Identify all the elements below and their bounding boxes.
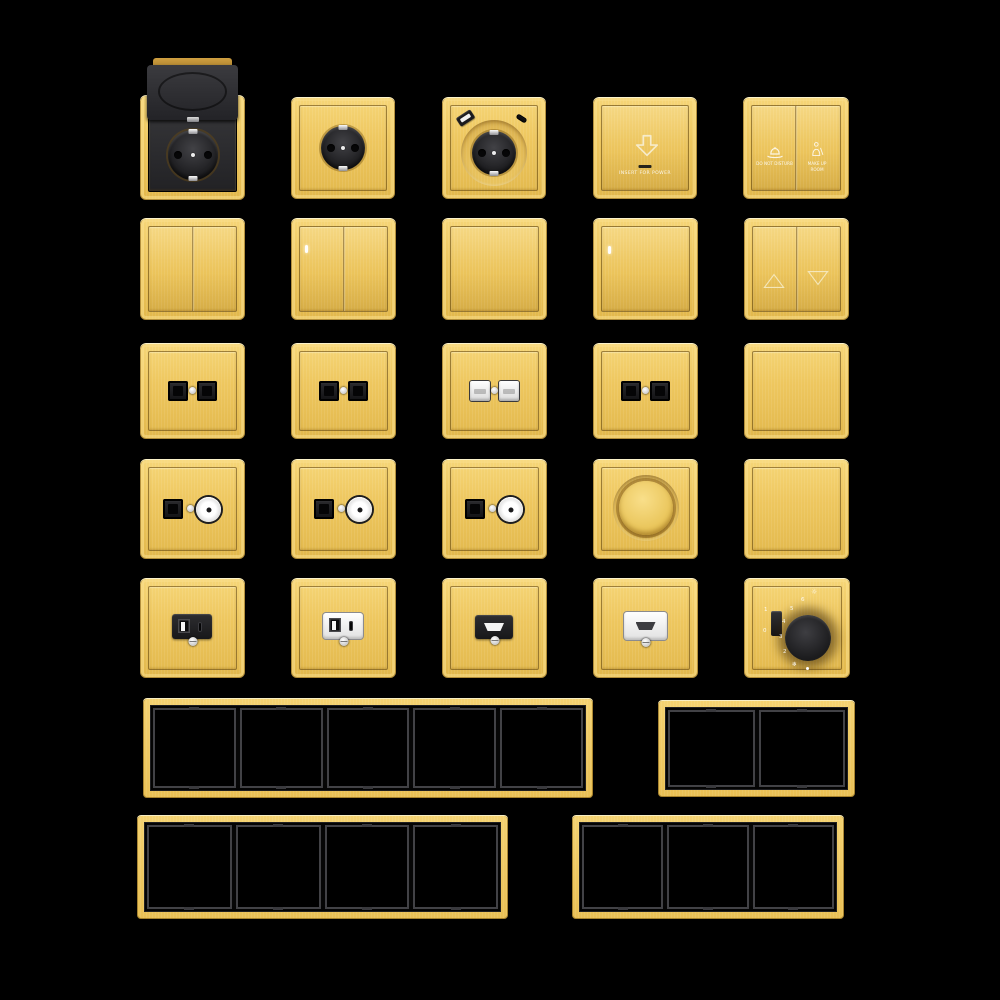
coax-tv-connector (196, 497, 221, 522)
scale-label-2: 2 (783, 650, 787, 656)
hdmi-socket-white (593, 578, 698, 678)
data-socket-2port-black-b (291, 343, 396, 439)
frame-opening (236, 825, 321, 909)
blank-plate-a (744, 343, 849, 439)
frame-inner (144, 822, 501, 912)
rocker-face (450, 226, 539, 312)
schuko-usb-socket (442, 97, 546, 199)
module-screw (641, 638, 650, 647)
tv-port (650, 381, 670, 401)
toggle-off-label: 0 (763, 629, 767, 635)
center-screw (489, 505, 496, 512)
hdmi-socket-black (442, 578, 547, 678)
cool-icon: ❄ (792, 662, 797, 668)
data-port (197, 381, 217, 401)
scale-label-4: 4 (782, 620, 786, 626)
blank-face (752, 467, 841, 551)
frame-opening (413, 708, 496, 788)
rocker-divider (795, 106, 797, 190)
do-not-disturb-label: DO NOT DISTURB (756, 161, 793, 167)
socket-screw (191, 153, 195, 157)
data-port (465, 499, 485, 519)
make-up-room-label: MAKE UP ROOM (802, 161, 832, 172)
key-card-label: INSERT FOR POWER (593, 171, 697, 176)
frame-opening (325, 825, 410, 909)
switch-2gang (140, 218, 245, 320)
usb-module (172, 614, 212, 639)
thermostat-toggle (771, 611, 782, 636)
center-screw (187, 505, 194, 512)
data-port (470, 381, 490, 401)
frame-opening (759, 710, 846, 787)
frame-inner (150, 705, 586, 791)
rocker-divider (796, 227, 798, 311)
schuko-outlet (321, 126, 365, 170)
frame-3gang (572, 815, 844, 919)
data-port (168, 381, 188, 401)
frame-inner (665, 707, 848, 790)
usb-a-port (329, 618, 341, 632)
frame-opening (500, 708, 583, 788)
hotel-service-switch: DO NOT DISTURB MAKE UP ROOM (743, 97, 849, 199)
make-up-room-icon (810, 141, 824, 159)
key-card-holder: INSERT FOR POWER (593, 97, 697, 199)
thermostat: 1 0 ☼ 6 5 4 3 2 ❄ (744, 578, 850, 678)
module-screw (490, 636, 499, 645)
data-port (499, 381, 519, 401)
socket-clip (490, 130, 499, 135)
scale-label-5: 5 (790, 607, 794, 613)
schuko-socket (291, 97, 395, 199)
scale-label-6: 6 (801, 598, 805, 604)
curtain-switch (744, 218, 849, 320)
usb-charger-black (140, 578, 245, 678)
center-screw (491, 387, 498, 394)
schuko-outlet (472, 131, 516, 175)
tv-data-combo-b (291, 459, 396, 559)
frame-opening (582, 825, 663, 909)
blank-face (752, 351, 841, 431)
center-screw (340, 387, 347, 394)
hdmi-module (624, 612, 667, 640)
rocker-face (601, 226, 690, 312)
usb-c-port (198, 622, 202, 632)
module-screw (188, 637, 197, 646)
frame-opening (147, 825, 232, 909)
tv-data-socket-2port-black (593, 343, 698, 439)
data-port (163, 499, 183, 519)
socket-screw (492, 151, 496, 155)
data-socket-2port-black-a (140, 343, 245, 439)
switch-1gang (442, 218, 547, 320)
hdmi-port (636, 622, 656, 630)
knob-indicator-dot (806, 667, 809, 670)
coax-tv-connector (498, 497, 523, 522)
rocker-divider (192, 227, 194, 311)
center-screw (189, 387, 196, 394)
switch-2gang-led (291, 218, 396, 320)
socket-clip (339, 166, 348, 171)
socket-screw (341, 146, 345, 150)
blank-plate-b (744, 459, 849, 559)
tv-data-combo-a (140, 459, 245, 559)
frame-opening (667, 825, 748, 909)
module-screw (339, 637, 348, 646)
frame-opening (153, 708, 236, 788)
insert-card-arrow-icon (633, 133, 661, 159)
data-port (319, 381, 339, 401)
thermostat-knob (785, 615, 831, 661)
do-not-disturb-icon (765, 144, 785, 159)
usb-charger-white (291, 578, 396, 678)
curtain-up-icon (762, 271, 786, 291)
socket-clip (490, 171, 499, 176)
center-screw (642, 387, 649, 394)
frame-inner (579, 822, 837, 912)
socket-clip (188, 176, 197, 181)
scale-label-3: 3 (779, 635, 783, 641)
rotary-dimmer (593, 459, 698, 559)
usb-module (323, 613, 363, 639)
frame-4gang (137, 815, 508, 919)
frame-2gang (658, 700, 855, 797)
switch-1gang-led (593, 218, 698, 320)
frame-opening (327, 708, 410, 788)
frame-opening (753, 825, 834, 909)
toggle-on-label: 1 (764, 608, 768, 614)
curtain-down-icon (806, 268, 830, 288)
dimmer-knob (619, 481, 673, 535)
schuko-outlet (168, 130, 218, 180)
frame-opening (668, 710, 755, 787)
frame-opening (413, 825, 498, 909)
frame-5gang (143, 698, 593, 798)
card-slot (639, 165, 652, 168)
socket-clip (339, 125, 348, 130)
data-socket-2port-white (442, 343, 547, 439)
tv-port (621, 381, 641, 401)
covered-schuko-socket (140, 95, 245, 200)
flip-cover-open (147, 65, 238, 120)
led-indicator (608, 246, 611, 254)
coax-tv-connector (347, 497, 372, 522)
center-screw (338, 505, 345, 512)
frame-opening (240, 708, 323, 788)
data-port (314, 499, 334, 519)
data-port (348, 381, 368, 401)
usb-c-port (349, 621, 353, 631)
heat-icon: ☼ (811, 589, 817, 596)
usb-a-port (178, 619, 190, 633)
hdmi-port (484, 623, 504, 631)
led-indicator (305, 245, 308, 253)
tv-data-combo-c (442, 459, 547, 559)
socket-clip (188, 129, 197, 134)
rocker-divider (343, 227, 345, 311)
product-collage: INSERT FOR POWER DO NOT DISTURB MAKE UP … (0, 0, 1000, 1000)
